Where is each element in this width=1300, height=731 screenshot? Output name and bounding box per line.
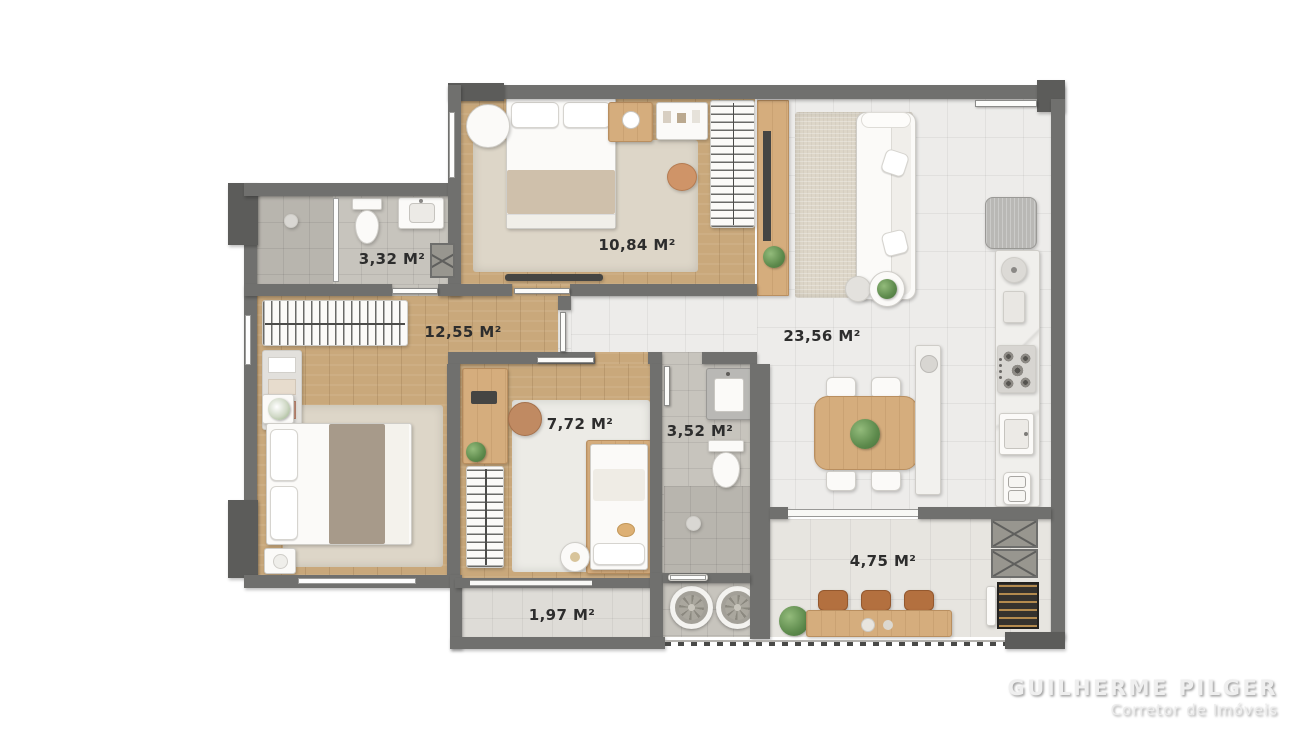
area-label-service-balcony: 1,97 M² [517,606,607,624]
doorway-bedroom3 [595,352,648,364]
wall-bedroom3-bathroom-divider [650,364,662,578]
floor-hall [571,296,757,352]
round-pouf [466,104,510,148]
vanity-bathroom [706,368,752,420]
cooktop [997,345,1036,393]
doorway-bathroom [662,352,702,364]
area-label-bathroom: 3,52 M² [655,422,745,440]
sliding-door-balcony [788,509,918,517]
flower-vase-suite [268,398,290,420]
wall-corner-bottom-right [1005,632,1065,649]
utility-shaft [991,519,1038,548]
floor-bathroom-shower [664,486,750,573]
wall-living-balcony-a [770,507,788,519]
shower-head-bathroom [686,516,701,531]
plant-tv-panel [763,246,785,268]
wall-bottom-outer [450,637,665,649]
wall-living-balcony-b [918,507,1051,519]
utility-shaft [991,549,1038,578]
bar-stool [861,590,891,611]
door-bedroom3 [537,357,594,363]
wall-right-outer [1051,99,1065,639]
bar-counter [806,610,952,637]
watermark-role: Corretor de Imóveis [1008,701,1278,719]
shower-glass-ensuite [333,198,339,282]
tv-console-bedroom2 [505,274,603,281]
dining-chair [826,377,856,397]
balcony-railing [665,640,1005,646]
toilet-bathroom [708,440,744,452]
wardrobe-bedroom3 [466,466,504,568]
window-laundry [670,575,706,580]
double-bed-suite [266,423,412,545]
closet-suite [262,300,408,346]
wall-suite-hall-stub [558,296,571,310]
bar-stool [818,590,848,611]
plant-coffee-table [877,279,897,299]
area-label-bedroom2: 10,84 M² [592,236,682,254]
dining-chair [826,471,856,491]
bar-stool [904,590,934,611]
door-ensuite [392,288,438,294]
door-bedroom2 [514,288,570,294]
wall-ensuite-top [244,183,456,196]
wall-bathroom-right [750,364,770,639]
plant-balcony [779,606,809,636]
dining-chair [871,377,901,397]
wall-service-laundry-divider [650,573,663,639]
washing-machine [670,586,713,629]
kitchen-sink [999,413,1034,455]
barbecue-grill [997,582,1039,629]
area-label-bedroom3: 7,72 M² [535,415,625,433]
window-suite-bottom [298,578,416,584]
single-bed [590,444,648,570]
sink-ensuite [398,197,444,229]
shower-head-ensuite [284,214,298,228]
wardrobe-bedroom2 [710,100,755,228]
wall-bedroom2-bottom [570,284,757,296]
wall-hall-bottom-b [648,352,662,364]
grill-side-boxes [986,586,996,626]
fridge [985,197,1037,249]
watermark: GUILHERME PILGER Corretor de Imóveis [1008,676,1278,719]
door-bathroom [664,366,670,406]
side-table-terracotta [667,163,697,191]
round-tray-table [560,542,590,572]
area-label-living-kitchen: 23,56 M² [777,327,867,345]
entry-door [975,100,1037,107]
wall-top-outer [448,85,1065,99]
wall-suite-bedroom3-divider [447,364,460,578]
cutting-board [1003,291,1025,323]
dining-chair [871,471,901,491]
window-bedroom2 [449,112,455,178]
console-decor [656,102,708,140]
floor-plan-canvas: { "plan": { "type": "apartment-floor-pla… [0,0,1300,731]
nightstand-bedroom2 [608,102,653,142]
wall-pillar-left-bottom [228,500,258,578]
oven-microwave-stack [1003,472,1031,505]
plant-bedroom3 [466,442,486,462]
area-label-suite: 12,55 M² [418,323,508,341]
toilet-ensuite [352,198,382,210]
area-label-balcony: 4,75 M² [838,552,928,570]
floor-ensuite-shower [257,196,333,284]
watermark-name: GUILHERME PILGER [1008,676,1278,700]
wall-ensuite-bottom-a [244,284,392,296]
wall-hall-bottom-c [702,352,757,364]
door-suite [560,312,566,352]
nightstand-suite-bottom [264,548,296,574]
wall-ensuite-bottom-b [438,284,512,296]
window-suite-left [245,315,251,365]
area-label-ensuite-bath: 3,32 M² [347,250,437,268]
double-bed [506,97,616,229]
kitchen-round-sink [1001,257,1027,283]
coffee-table-small [845,276,871,302]
plant-dining-table [850,419,880,449]
sliding-door-service [470,580,592,586]
kitchen-peninsula [915,345,941,495]
